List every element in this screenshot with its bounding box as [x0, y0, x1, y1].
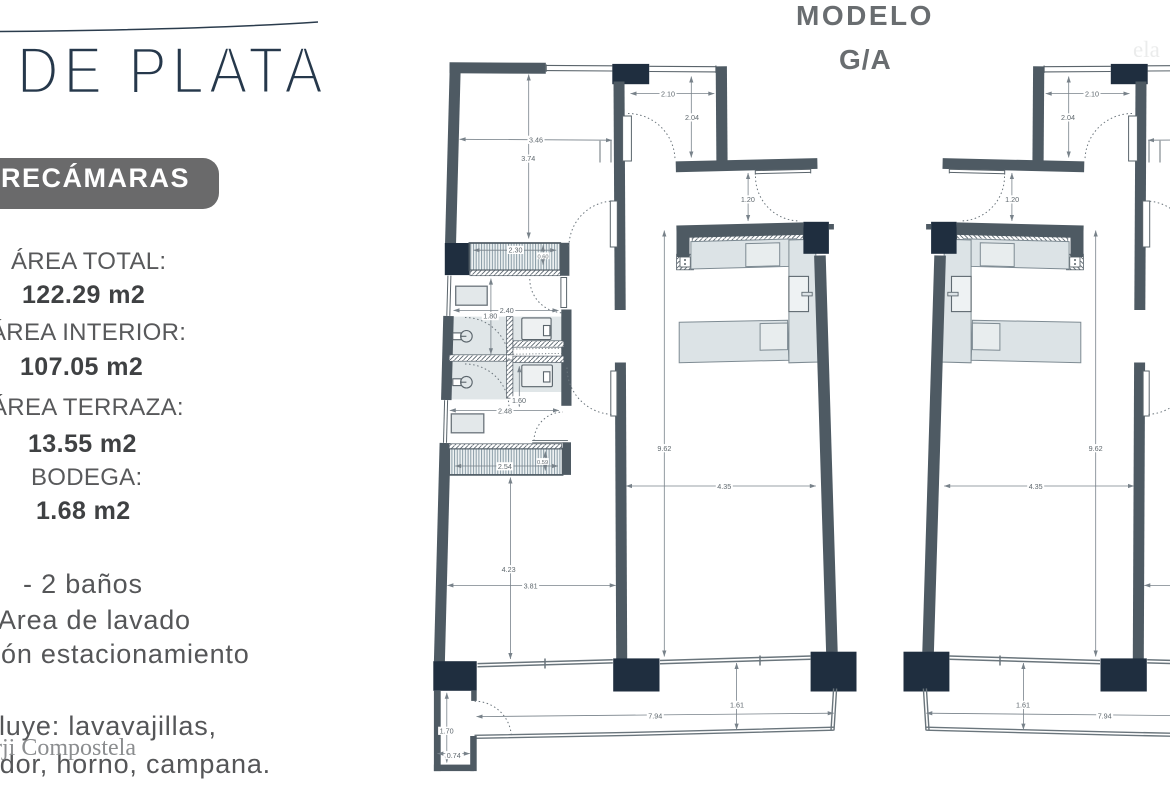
svg-text:0.59: 0.59 — [537, 460, 548, 466]
svg-text:2.30: 2.30 — [509, 246, 523, 255]
svg-text:1.60: 1.60 — [512, 396, 526, 405]
svg-text:2.54: 2.54 — [498, 462, 512, 471]
svg-text:0.74: 0.74 — [447, 751, 461, 760]
svg-text:1.20: 1.20 — [741, 195, 755, 204]
svg-text:1.61: 1.61 — [1016, 701, 1030, 710]
svg-text:7.94: 7.94 — [648, 712, 662, 721]
svg-text:2.10: 2.10 — [661, 89, 675, 98]
svg-text:1.61: 1.61 — [730, 701, 744, 710]
svg-text:2.04: 2.04 — [685, 113, 699, 122]
svg-text:9.62: 9.62 — [1089, 444, 1103, 453]
svg-text:2.04: 2.04 — [1061, 113, 1075, 122]
svg-text:4.23: 4.23 — [502, 565, 516, 574]
svg-text:4.35: 4.35 — [1029, 482, 1043, 491]
svg-text:0.60: 0.60 — [537, 254, 548, 260]
svg-text:2.40: 2.40 — [500, 306, 514, 315]
svg-text:2.10: 2.10 — [1085, 89, 1099, 98]
svg-text:1.70: 1.70 — [440, 726, 454, 735]
svg-text:3.81: 3.81 — [524, 581, 538, 590]
svg-text:2.48: 2.48 — [498, 406, 512, 415]
svg-text:3.46: 3.46 — [529, 135, 543, 144]
svg-text:1.20: 1.20 — [1005, 195, 1019, 204]
svg-text:9.62: 9.62 — [657, 444, 671, 453]
svg-text:1.80: 1.80 — [483, 312, 497, 321]
svg-text:7.94: 7.94 — [1098, 712, 1112, 721]
svg-text:3.74: 3.74 — [521, 154, 535, 163]
svg-text:4.35: 4.35 — [717, 482, 731, 491]
